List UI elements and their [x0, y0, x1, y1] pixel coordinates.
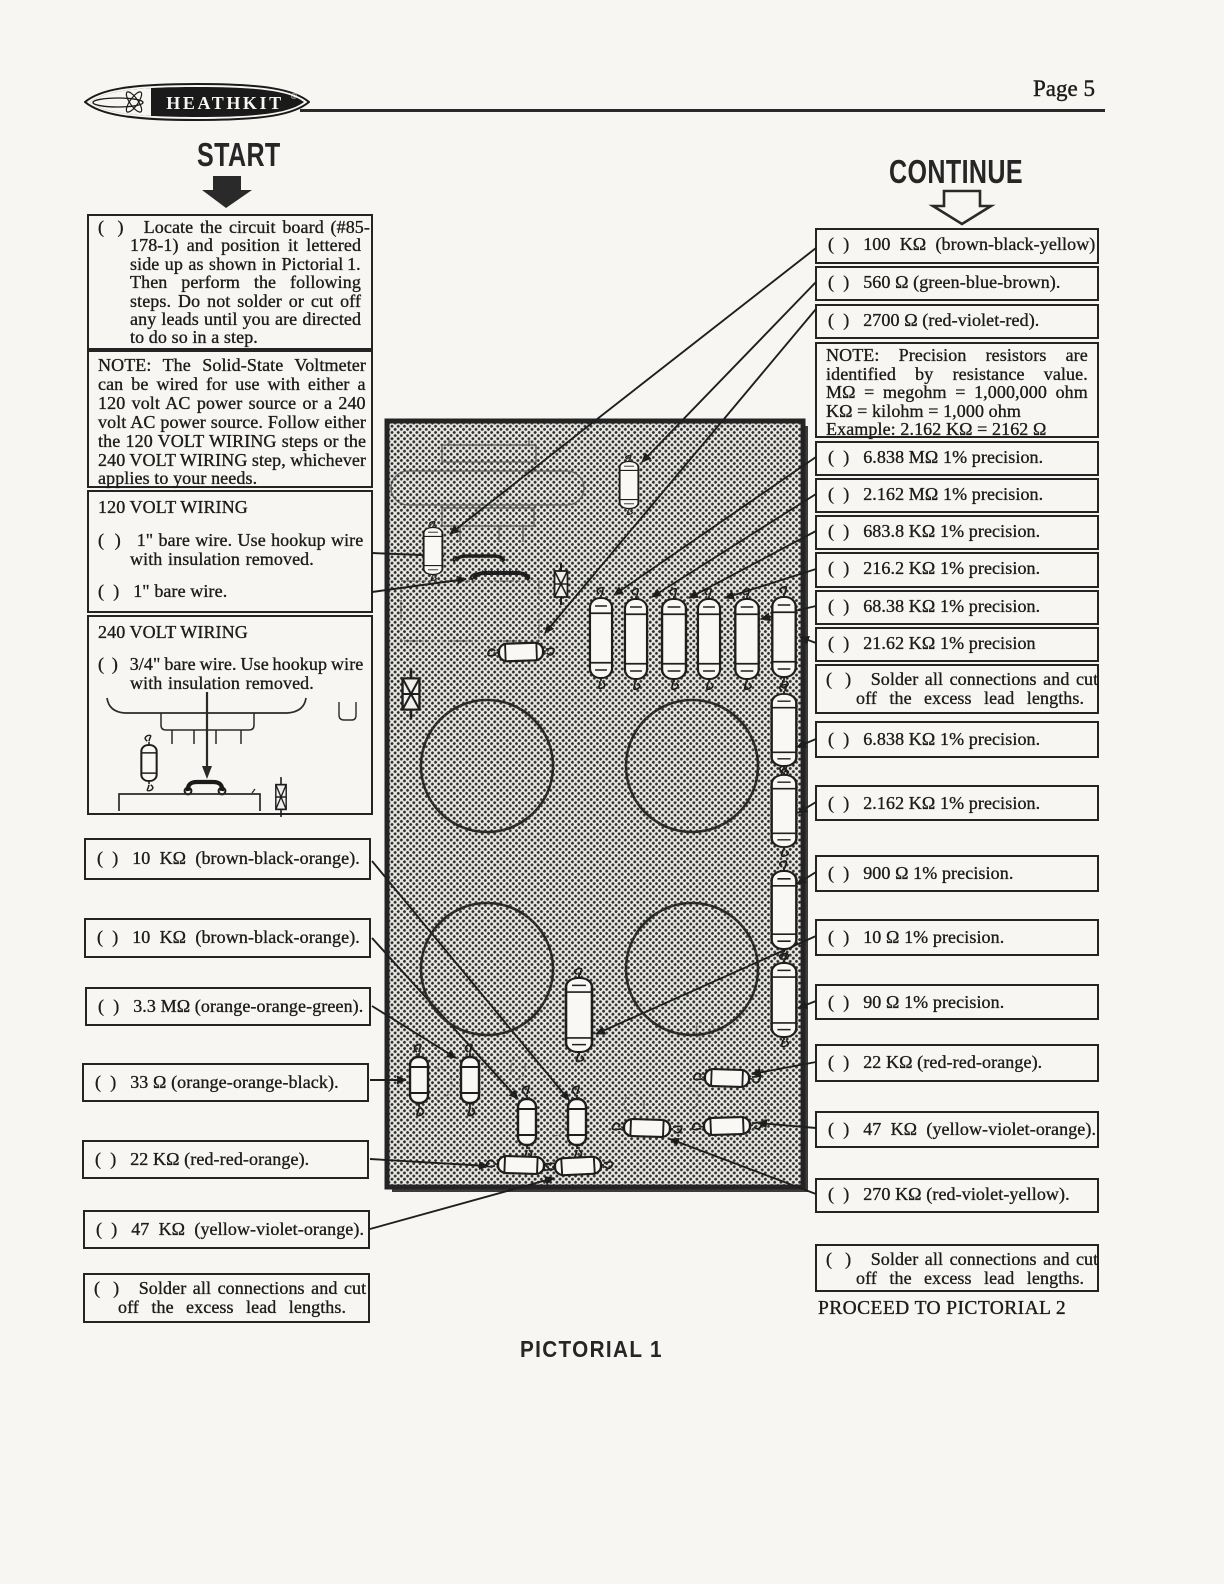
svg-text:®: ® — [291, 92, 297, 101]
svg-text:HEATHKIT: HEATHKIT — [166, 93, 284, 113]
